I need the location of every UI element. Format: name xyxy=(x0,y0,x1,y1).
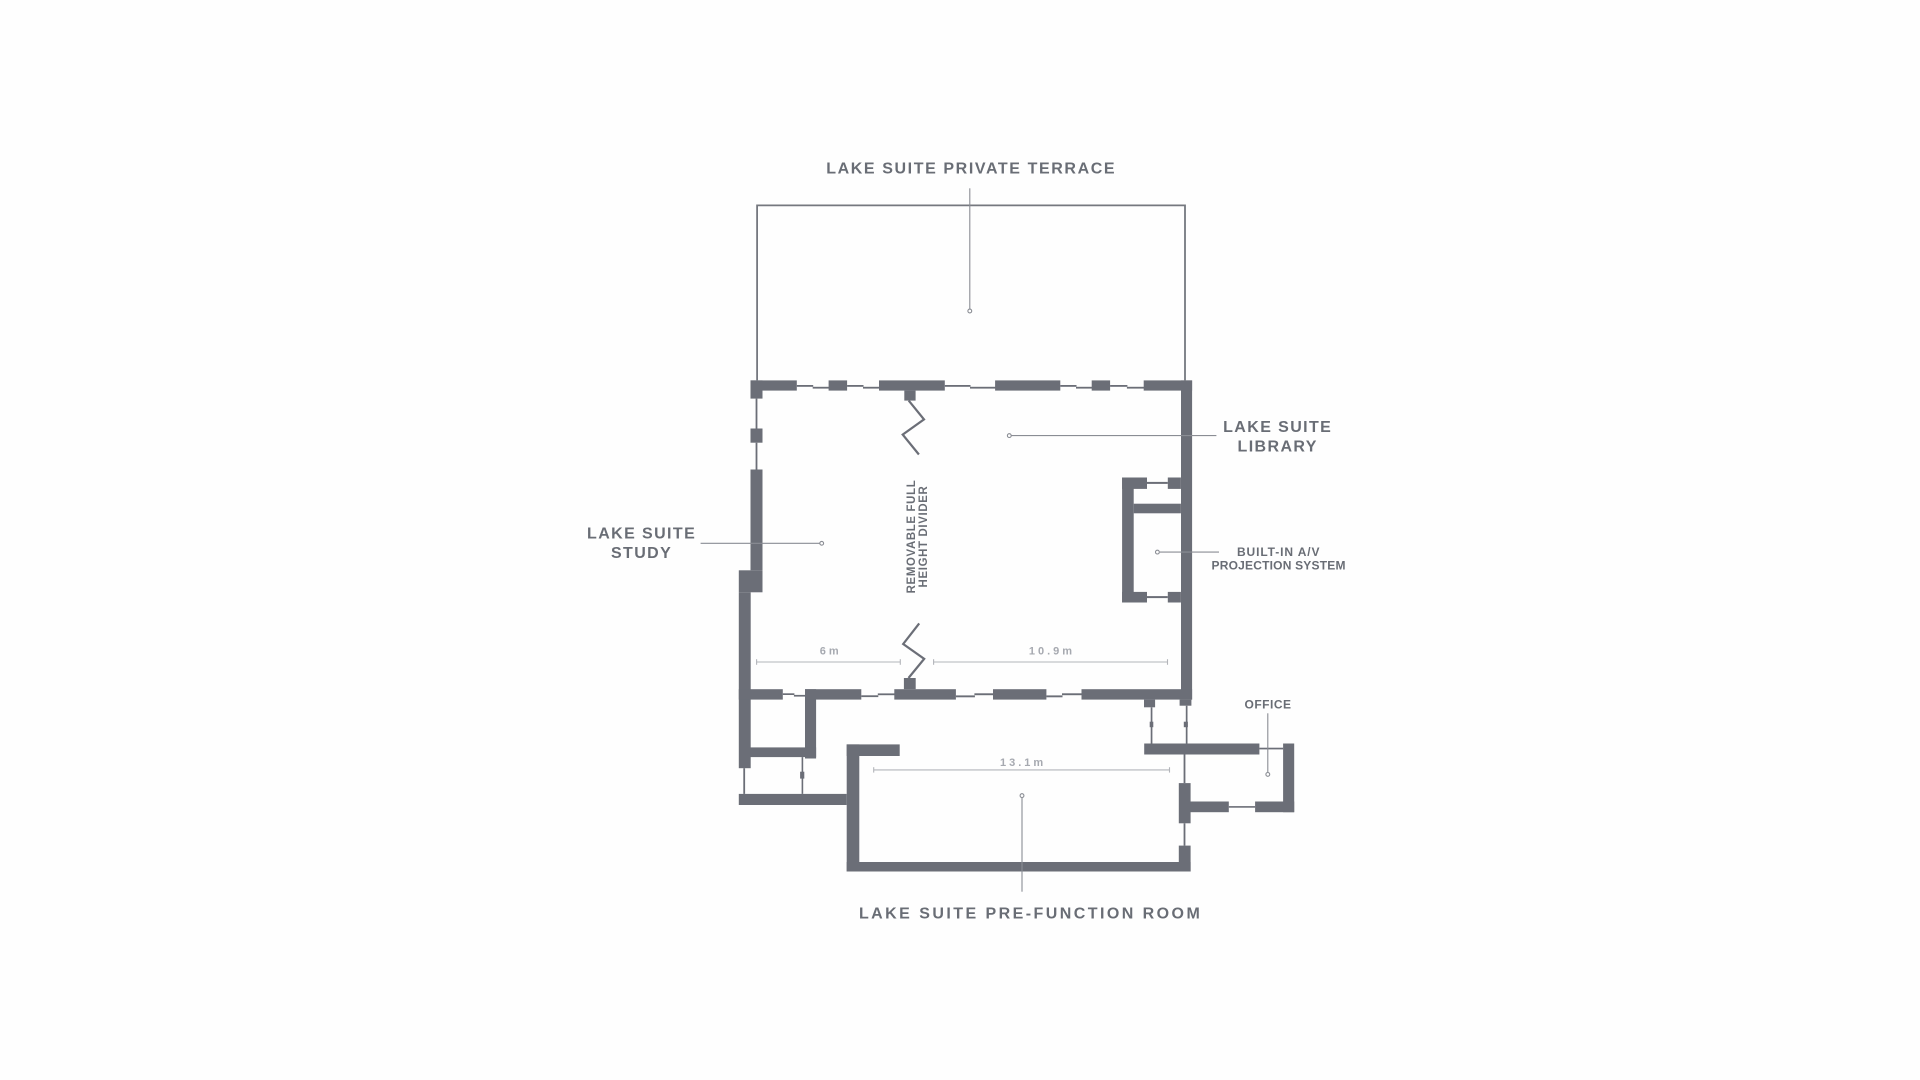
svg-text:10.9m: 10.9m xyxy=(1029,646,1075,658)
svg-text:STUDY: STUDY xyxy=(611,545,672,562)
svg-text:LAKE SUITE PRE-FUNCTION ROOM: LAKE SUITE PRE-FUNCTION ROOM xyxy=(859,906,1202,923)
svg-text:LAKE SUITE: LAKE SUITE xyxy=(587,526,696,543)
svg-text:13.1m: 13.1m xyxy=(1000,757,1046,769)
svg-text:PROJECTION SYSTEM: PROJECTION SYSTEM xyxy=(1212,559,1346,573)
svg-text:HEIGHT DIVIDER: HEIGHT DIVIDER xyxy=(917,486,930,588)
svg-text:6m: 6m xyxy=(820,646,842,658)
svg-text:LIBRARY: LIBRARY xyxy=(1238,438,1318,455)
svg-text:BUILT-IN A/V: BUILT-IN A/V xyxy=(1237,545,1320,559)
svg-text:LAKE SUITE PRIVATE TERRACE: LAKE SUITE PRIVATE TERRACE xyxy=(826,161,1116,178)
svg-text:OFFICE: OFFICE xyxy=(1245,697,1292,711)
svg-text:LAKE SUITE: LAKE SUITE xyxy=(1223,419,1332,436)
